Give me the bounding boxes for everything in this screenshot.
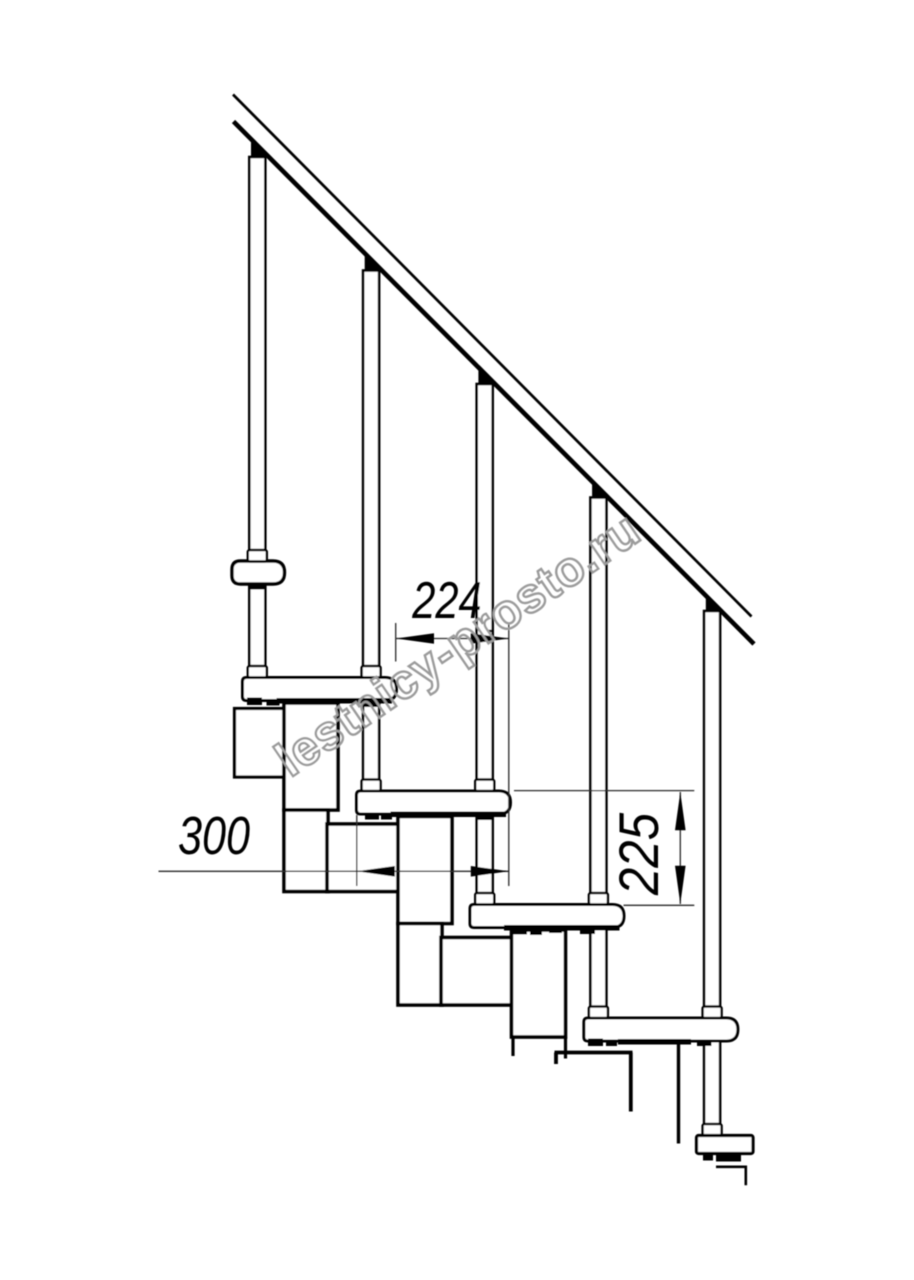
svg-text:225: 225 <box>608 812 671 896</box>
svg-text:300: 300 <box>178 807 250 867</box>
